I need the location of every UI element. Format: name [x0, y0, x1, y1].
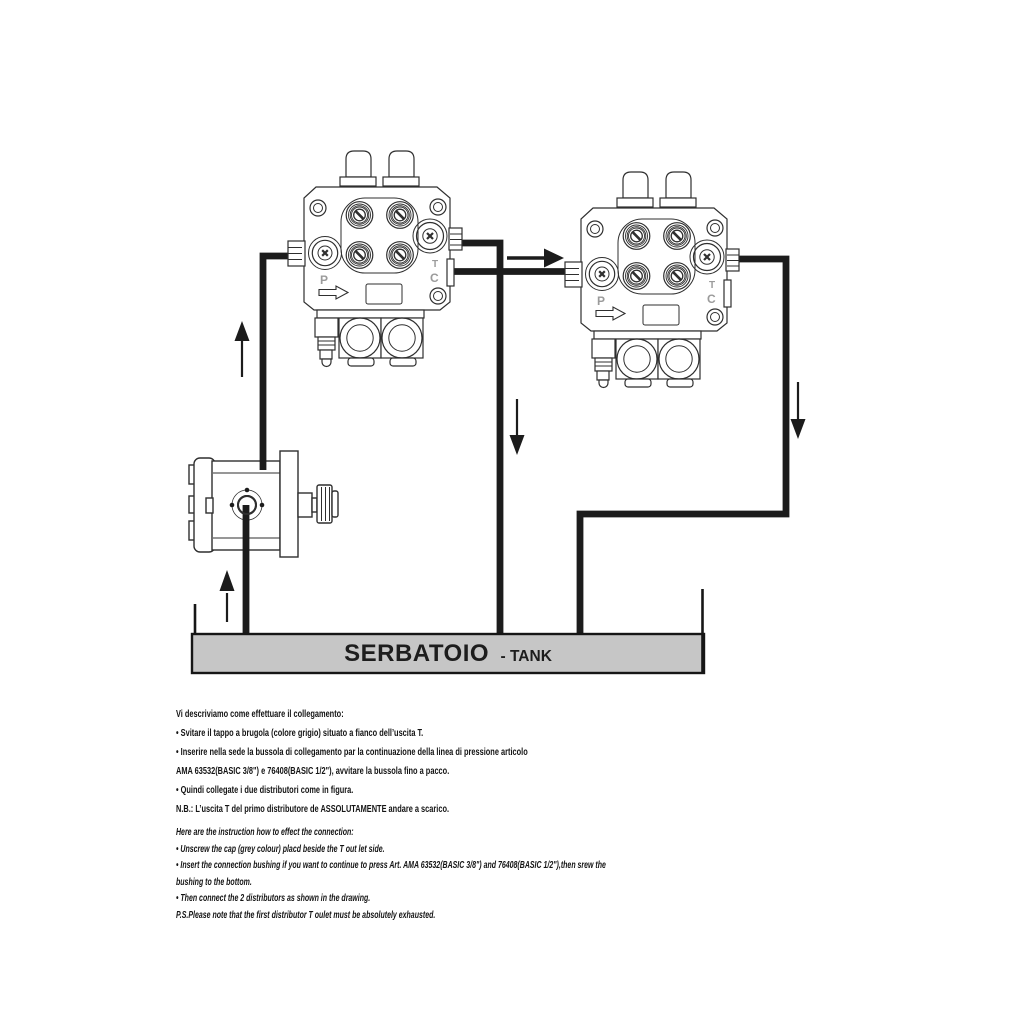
- page: P T C P T C SERBATOIO - TANK: [0, 0, 1024, 1024]
- instruction-line: bushing to the bottom.: [176, 875, 606, 892]
- pipe-valve1-t-to-tank: [453, 243, 500, 634]
- flow-arrow-up-pump-to-valve1: [235, 321, 250, 377]
- valve1-t-label: T: [432, 259, 438, 270]
- tank: SERBATOIO - TANK: [192, 589, 704, 673]
- valve2-t-label: T: [709, 280, 715, 291]
- instruction-line: Vi descriviamo come effettuare il colleg…: [176, 706, 528, 725]
- instruction-line: N.B.: L’uscita T del primo distributore …: [176, 801, 528, 820]
- instruction-line: • Inserire nella sede la bussola di coll…: [176, 744, 528, 763]
- instructions-italian: Vi descriviamo come effettuare il colleg…: [176, 706, 528, 819]
- valve2-p-label: P: [597, 294, 605, 308]
- instruction-line: AMA 63532(BASIC 3/8") e 76408(BASIC 1/2"…: [176, 763, 528, 782]
- pump-shaft: [298, 485, 338, 523]
- instruction-line: P.S.Please note that the first distribut…: [176, 908, 606, 925]
- valve2-c-label: C: [707, 292, 716, 306]
- pipe-pump-to-valve1-pressure: [263, 256, 298, 470]
- instruction-line: Here are the instruction how to effect t…: [176, 825, 606, 842]
- instructions-english: Here are the instruction how to effect t…: [176, 825, 606, 925]
- flow-arrow-right-valve1-to-valve2: [507, 249, 564, 268]
- valve1-c-label: C: [430, 271, 439, 285]
- tank-label-primary: SERBATOIO: [344, 640, 489, 667]
- pump-flange: [280, 451, 298, 557]
- valve1-p-label: P: [320, 273, 328, 287]
- flow-arrow-down-valve2-return: [791, 382, 806, 439]
- instruction-line: • Then connect the 2 distributors as sho…: [176, 891, 606, 908]
- instruction-line: • Svitare il tappo a brugola (colore gri…: [176, 725, 528, 744]
- tank-label-secondary: - TANK: [501, 648, 553, 665]
- instruction-line: • Quindi collegate i due distributori co…: [176, 782, 528, 801]
- instruction-line: • Insert the connection bushing if you w…: [176, 858, 606, 875]
- instruction-line: • Unscrew the cap (grey colour) placd be…: [176, 842, 606, 859]
- flow-arrow-up-tank-to-pump: [220, 570, 235, 622]
- flow-arrow-down-t-drain: [510, 399, 525, 455]
- pump-side-boss: [206, 498, 213, 513]
